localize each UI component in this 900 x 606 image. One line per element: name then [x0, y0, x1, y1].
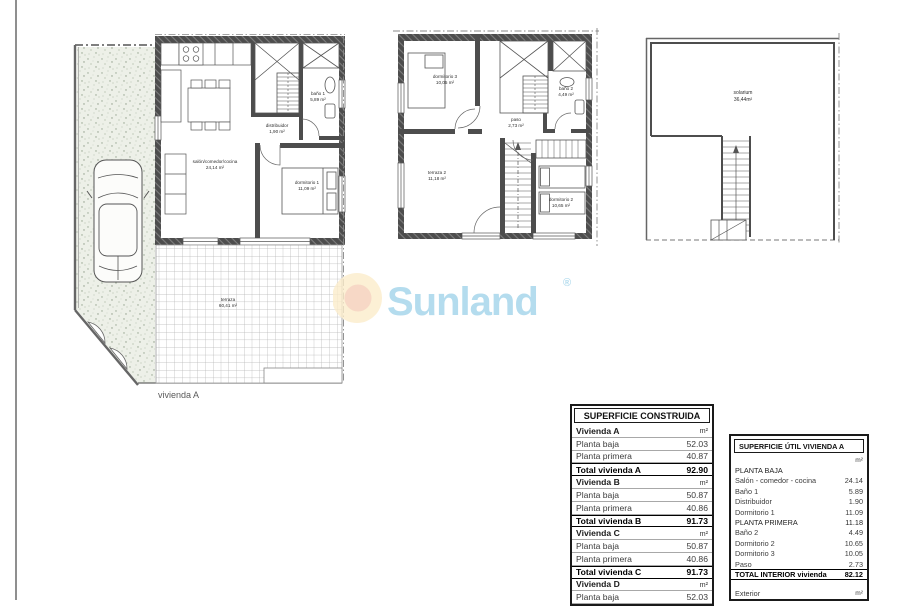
- room-label-bath2: baño 2: [559, 86, 573, 91]
- row-value: 92.90: [686, 465, 708, 475]
- table-row: PLANTA PRIMERA 11.18: [731, 517, 867, 527]
- table-row: TOTAL INTERIOR vivienda 82.12: [731, 569, 867, 579]
- row-value: 10.05: [845, 549, 863, 558]
- row-value: 10.65: [845, 539, 863, 548]
- row-value: 5.89: [849, 487, 863, 496]
- row-label: Dormitorio 1: [735, 508, 775, 517]
- plan-sheet: salón/comedor/cocina 24,14 m² distribuid…: [0, 0, 900, 600]
- row-label: Planta baja: [576, 541, 619, 551]
- table-row: Vivienda C m²: [572, 527, 712, 540]
- kitchen-island: [161, 70, 181, 122]
- table-row: [731, 580, 867, 589]
- solarium-plan: solarium 36,44m²: [643, 33, 848, 245]
- row-label: Total vivienda C: [576, 567, 641, 577]
- registered-mark: ®: [563, 277, 571, 289]
- table-row: Planta baja 50.87: [572, 540, 712, 553]
- built-surface-table: SUPERFICIE CONSTRUIDA Vivienda A m² Plan…: [570, 404, 714, 606]
- sofa: [165, 154, 186, 214]
- row-value: m²: [700, 529, 708, 538]
- row-label: Vivienda B: [576, 477, 620, 487]
- table-row: Paso 2.73: [731, 559, 867, 569]
- row-label: Dormitorio 3: [735, 549, 775, 558]
- table-title: SUPERFICIE ÚTIL VIVIENDA A: [734, 439, 864, 453]
- row-value: 91.73: [686, 567, 708, 577]
- table-row: Planta primera 40.87: [572, 451, 712, 464]
- row-label: Exterior: [735, 589, 760, 598]
- row-label: PLANTA BAJA: [735, 466, 783, 475]
- room-label-bedroom1: dormitorio 1: [295, 180, 320, 185]
- room-area-bedroom2: 10,65 m²: [552, 203, 571, 208]
- row-value: m²: [855, 457, 863, 464]
- row-label: Planta baja: [576, 439, 619, 449]
- row-value: 50.87: [686, 541, 708, 551]
- plan-title: vivienda A: [158, 390, 199, 400]
- row-label: PLANTA PRIMERA: [735, 518, 798, 527]
- table-row: Distribuidor 1.90: [731, 497, 867, 507]
- room-label-bedroom2: dormitorio 2: [549, 197, 574, 202]
- row-label: Planta primera: [576, 503, 632, 513]
- table-row: Dormitorio 3 10.05: [731, 549, 867, 559]
- first-floor-plan: dormitorio 3 10,05 m² baño 2 4,49 m² pas…: [393, 28, 603, 248]
- row-value: 40.86: [686, 503, 708, 513]
- row-label: TOTAL INTERIOR vivienda: [735, 570, 827, 579]
- row-value: 50.87: [686, 490, 708, 500]
- table-row: Vivienda B m²: [572, 476, 712, 489]
- brand-name: Sunland: [387, 280, 538, 324]
- staircase: [711, 141, 750, 240]
- room-label-terrace2: terraza 2: [428, 170, 447, 175]
- row-value: 24.14: [845, 476, 863, 485]
- room-area-hall: 1,90 m²: [269, 129, 285, 134]
- dining-table: [188, 88, 230, 122]
- row-label: Distribuidor: [735, 497, 772, 506]
- row-label: Baño 1: [735, 487, 758, 496]
- row-value: m²: [700, 478, 708, 487]
- room-label-solarium: solarium: [734, 90, 753, 96]
- table-row: Vivienda A m²: [572, 425, 712, 438]
- row-label: Vivienda C: [576, 528, 620, 538]
- row-label: Planta primera: [576, 554, 632, 564]
- row-label: Vivienda A: [576, 426, 619, 436]
- row-label: Dormitorio 2: [735, 539, 775, 548]
- table-row: Total vivienda C 91.73: [572, 566, 712, 579]
- table-row: Planta primera 40.86: [572, 502, 712, 515]
- table-row: Planta baja 52.03: [572, 591, 712, 604]
- room-area-living: 24,14 m²: [206, 165, 225, 170]
- usable-surface-table: SUPERFICIE ÚTIL VIVIENDA A m² PLANTA BAJ…: [729, 434, 869, 601]
- table-row: Baño 2 4.49: [731, 528, 867, 538]
- row-label: Salón - comedor - cocina: [735, 476, 816, 485]
- row-value: m²: [700, 580, 708, 589]
- room-area-terrace: 60,41 m²: [219, 303, 238, 308]
- solarium-walls: [651, 43, 834, 240]
- row-value: 91.73: [686, 516, 708, 526]
- car: [87, 160, 149, 282]
- room-label-living: salón/comedor/cocina: [193, 159, 238, 164]
- row-value: 2.73: [849, 560, 863, 569]
- table-row: PLANTA BAJA: [731, 465, 867, 475]
- roof-outline: [646, 33, 839, 243]
- table-row: Exterior m²: [731, 589, 867, 599]
- row-value: m²: [700, 426, 708, 435]
- staircase: [500, 41, 548, 113]
- row-label: Total vivienda A: [576, 465, 641, 475]
- row-value: 82.12: [845, 570, 863, 579]
- table-row: Salón - comedor - cocina 24.14: [731, 476, 867, 486]
- row-label: Baño 2: [735, 528, 758, 537]
- room-area-bedroom3: 10,05 m²: [436, 80, 455, 85]
- table-row: Planta baja 50.87: [572, 489, 712, 502]
- sunland-watermark: Sunland ®: [333, 270, 583, 332]
- row-value: m²: [855, 590, 863, 597]
- room-area-landing: 2,73 m²: [508, 123, 524, 128]
- sun-icon: [333, 273, 382, 323]
- room-area-bath1: 5,89 m²: [310, 97, 326, 102]
- stove: [179, 43, 203, 65]
- row-value: 40.86: [686, 554, 708, 564]
- room-label-hall: distribuidor: [266, 123, 289, 128]
- bathroom-fixtures: [303, 43, 339, 118]
- row-value: 40.87: [686, 451, 708, 461]
- row-label: Planta primera: [576, 451, 632, 461]
- room-label-bedroom3: dormitorio 3: [433, 74, 458, 79]
- row-value: 1.90: [849, 497, 863, 506]
- stairwell-down: [505, 142, 531, 228]
- staircase: [255, 43, 299, 113]
- bathroom-fixtures: [553, 41, 586, 114]
- table-row: Total vivienda A 92.90: [572, 463, 712, 476]
- bed: [282, 168, 338, 214]
- room-label-landing: paso: [511, 117, 521, 122]
- row-value: 4.49: [849, 528, 863, 537]
- row-value: 11.18: [845, 518, 863, 527]
- room-area-bedroom1: 11,09 m²: [298, 186, 316, 191]
- table-row: Dormitorio 2 10.65: [731, 538, 867, 548]
- table-row: Planta baja 52.03: [572, 438, 712, 451]
- page-border-line: [15, 0, 17, 600]
- room-area-solarium: 36,44m²: [734, 97, 753, 103]
- room-area-terrace2: 11,18 m²: [428, 176, 446, 181]
- table-row: Baño 1 5.89: [731, 486, 867, 496]
- table-row: Dormitorio 1 11.09: [731, 507, 867, 517]
- terrace: [156, 245, 342, 383]
- room-label-terrace: terraza: [221, 297, 236, 302]
- table-row: Vivienda D m²: [572, 579, 712, 592]
- table-row: Total vivienda B 91.73: [572, 515, 712, 528]
- closet: [536, 140, 586, 158]
- row-value: 52.03: [686, 592, 708, 602]
- table-row: Planta primera 40.86: [572, 553, 712, 566]
- table-title: SUPERFICIE CONSTRUIDA: [574, 408, 710, 423]
- table-row: m²: [731, 455, 867, 465]
- row-label: Planta baja: [576, 490, 619, 500]
- kitchen-furniture: [161, 43, 251, 214]
- row-value: 11.09: [845, 508, 863, 517]
- ground-floor-plan: salón/comedor/cocina 24,14 m² distribuid…: [58, 28, 348, 403]
- row-label: Vivienda D: [576, 579, 620, 589]
- room-label-bath1: baño 1: [311, 91, 325, 96]
- row-label: Planta baja: [576, 592, 619, 602]
- row-label: Total vivienda B: [576, 516, 641, 526]
- row-value: 52.03: [686, 439, 708, 449]
- room-area-bath2: 4,49 m²: [558, 92, 574, 97]
- row-label: Paso: [735, 560, 752, 569]
